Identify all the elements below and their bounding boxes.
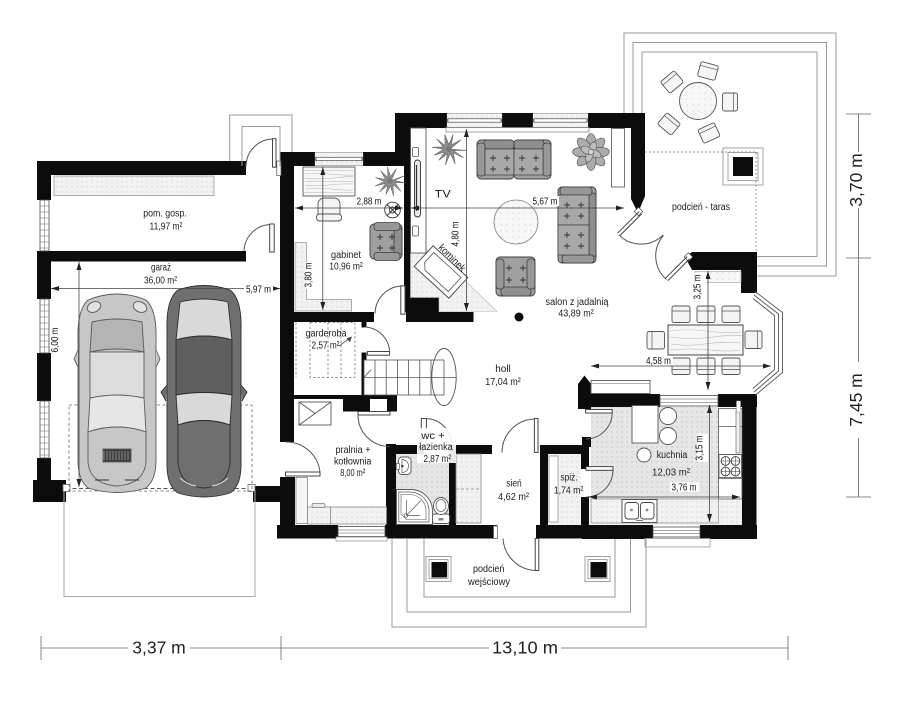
svg-text:17,04 m²: 17,04 m²: [485, 377, 521, 388]
svg-text:pralnia +: pralnia +: [336, 445, 371, 456]
svg-text:5,67 m: 5,67 m: [533, 197, 558, 208]
svg-text:12,03 m²: 12,03 m²: [652, 468, 691, 479]
svg-text:5,97 m: 5,97 m: [246, 285, 271, 296]
svg-text:holl: holl: [495, 364, 511, 375]
svg-text:3,70 m: 3,70 m: [846, 153, 866, 207]
svg-text:garderoba: garderoba: [306, 329, 347, 340]
svg-text:7,45 m: 7,45 m: [846, 373, 866, 427]
svg-text:podcień: podcień: [473, 564, 505, 575]
svg-text:2,57 m²: 2,57 m²: [312, 341, 341, 352]
svg-text:spiż.: spiż.: [561, 473, 578, 484]
svg-text:salon z jadalnią: salon z jadalnią: [546, 297, 609, 308]
svg-text:wc +: wc +: [420, 431, 445, 442]
svg-text:43,89 m²: 43,89 m²: [558, 308, 594, 319]
svg-text:4,58 m: 4,58 m: [646, 356, 671, 367]
svg-text:garaż: garaż: [151, 263, 171, 274]
svg-text:36,00 m²: 36,00 m²: [144, 276, 178, 287]
svg-text:3,80 m: 3,80 m: [304, 263, 315, 288]
svg-text:13,10 m: 13,10 m: [492, 638, 558, 658]
svg-text:8,00 m²: 8,00 m²: [340, 468, 365, 479]
svg-text:2,88 m: 2,88 m: [357, 197, 382, 208]
svg-text:10,96 m²: 10,96 m²: [329, 262, 363, 273]
svg-text:4,80 m: 4,80 m: [451, 222, 462, 247]
svg-text:pom. gosp.: pom. gosp.: [143, 209, 187, 220]
svg-text:sień: sień: [506, 479, 522, 490]
svg-text:3,25 m: 3,25 m: [693, 275, 704, 300]
svg-text:TV: TV: [435, 189, 452, 201]
svg-text:3,15 m: 3,15 m: [695, 436, 706, 461]
svg-text:kuchnia: kuchnia: [657, 450, 688, 461]
svg-text:3,76 m: 3,76 m: [672, 483, 697, 494]
svg-text:podcień - taras: podcień - taras: [672, 202, 730, 213]
svg-text:11,97 m²: 11,97 m²: [150, 222, 184, 233]
svg-text:wejściowy: wejściowy: [467, 577, 510, 588]
svg-text:kotłownia: kotłownia: [334, 456, 372, 467]
svg-text:gabinet: gabinet: [331, 250, 361, 261]
svg-text:2,87 m²: 2,87 m²: [424, 454, 452, 465]
svg-text:1,74 m²: 1,74 m²: [554, 486, 584, 497]
svg-text:6,00 m: 6,00 m: [50, 328, 61, 353]
svg-text:3,37 m: 3,37 m: [132, 638, 186, 658]
svg-text:łazienka: łazienka: [419, 442, 453, 453]
svg-text:4,62 m²: 4,62 m²: [498, 492, 530, 503]
